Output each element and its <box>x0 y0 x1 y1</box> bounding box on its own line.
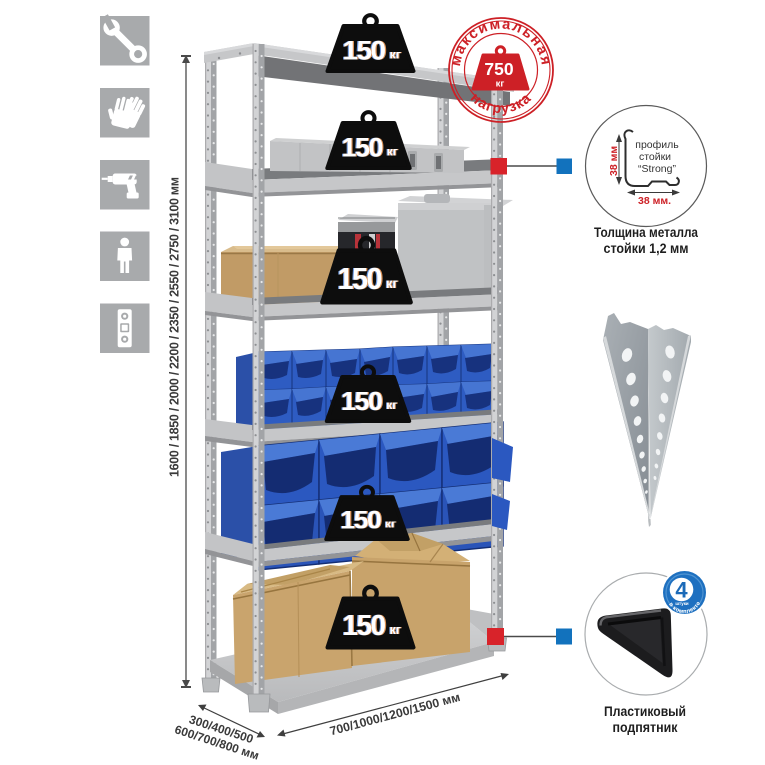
svg-text:профиль: профиль <box>635 139 679 151</box>
svg-text:кг: кг <box>386 398 397 412</box>
svg-text:150: 150 <box>338 262 382 296</box>
svg-text:700/1000/1200/1500 мм: 700/1000/1200/1500 мм <box>328 690 461 738</box>
svg-text:750: 750 <box>484 59 513 79</box>
svg-text:кг: кг <box>390 622 401 637</box>
svg-text:кг: кг <box>387 145 398 159</box>
svg-text:“Strong”: “Strong” <box>638 163 676 175</box>
svg-text:38 мм: 38 мм <box>608 146 620 176</box>
svg-text:кг: кг <box>496 79 505 90</box>
svg-text:штуки: штуки <box>675 601 689 606</box>
svg-text:Толщина металла: Толщина металла <box>594 224 698 240</box>
svg-text:Пластиковый: Пластиковый <box>604 703 686 719</box>
svg-text:подпятник: подпятник <box>613 719 679 735</box>
svg-text:стойки: стойки <box>639 151 671 163</box>
svg-text:4: 4 <box>675 578 688 603</box>
svg-text:150: 150 <box>342 609 385 642</box>
svg-text:150: 150 <box>341 386 382 416</box>
svg-text:стойки 1,2 мм: стойки 1,2 мм <box>604 240 689 256</box>
svg-text:38 мм.: 38 мм. <box>638 195 671 207</box>
svg-text:150: 150 <box>340 507 381 534</box>
svg-text:кг: кг <box>386 276 398 291</box>
svg-text:150: 150 <box>342 133 383 163</box>
svg-text:150: 150 <box>342 35 385 65</box>
svg-text:кг: кг <box>385 519 396 531</box>
svg-text:кг: кг <box>390 48 401 62</box>
svg-text:1600 / 1850 / 2000 / 2200 / 23: 1600 / 1850 / 2000 / 2200 / 2350 / 2550 … <box>168 177 182 477</box>
